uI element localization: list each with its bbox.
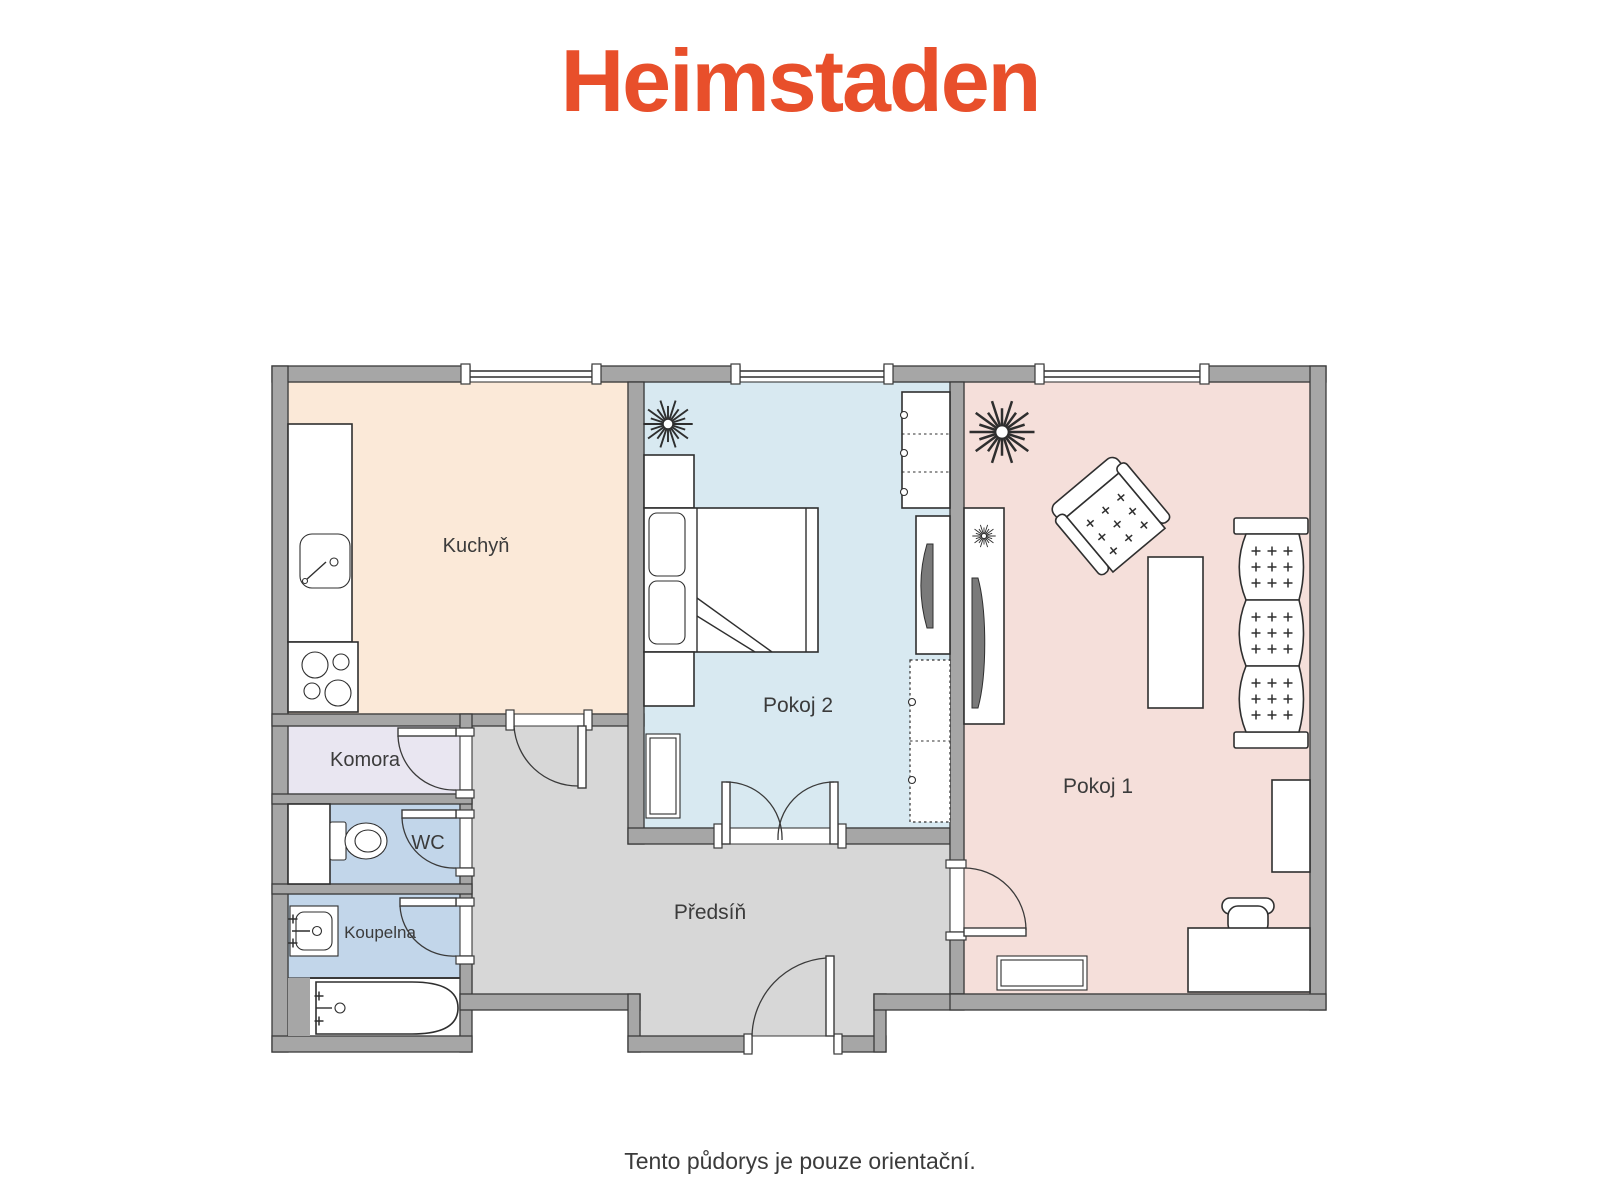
window-icon — [1035, 364, 1044, 384]
door-icon — [400, 898, 456, 906]
wall-segment — [950, 994, 1326, 1010]
coffee-table-icon — [1148, 557, 1203, 708]
door-icon — [402, 810, 456, 818]
toilet-icon — [330, 822, 387, 860]
wardrobe-icon — [909, 660, 951, 822]
door-icon — [826, 956, 834, 1036]
room-label-kuchyn: Kuchyň — [443, 535, 510, 557]
wall-segment — [272, 884, 472, 894]
disclaimer-caption: Tento půdorys je pouze orientační. — [0, 1148, 1600, 1175]
pillow — [649, 513, 685, 576]
bathtub-icon — [315, 982, 459, 1034]
window-icon — [1200, 364, 1209, 384]
wall-segment — [950, 382, 964, 868]
window-pokoj2 — [731, 364, 893, 384]
nightstand — [644, 455, 694, 508]
radiator-icon — [646, 734, 680, 818]
room-label-pokoj2: Pokoj 2 — [763, 694, 833, 717]
bed-icon — [644, 508, 818, 652]
wall-segment — [1200, 366, 1326, 382]
wall-segment — [272, 714, 514, 726]
door-icon — [722, 782, 730, 844]
wall-segment — [272, 366, 470, 382]
pillow — [649, 581, 685, 644]
room-label-koupelna: Koupelna — [344, 923, 416, 942]
window-icon — [592, 364, 601, 384]
wardrobe-icon — [901, 392, 951, 508]
wall-segment — [460, 994, 640, 1010]
wall-segment — [272, 794, 472, 804]
wall-segment — [1310, 366, 1326, 1010]
wall-segment — [838, 828, 950, 844]
sink-icon — [300, 534, 350, 588]
window-icon — [731, 364, 740, 384]
sofa-icon — [1234, 518, 1308, 748]
wall-segment — [628, 828, 722, 844]
cabinet-icon — [1272, 780, 1310, 872]
window-kitchen — [461, 364, 601, 384]
wall-segment — [272, 366, 288, 1052]
page: Heimstaden — [0, 0, 1600, 1200]
kitchen-counter — [288, 424, 352, 642]
washbasin-icon — [289, 906, 339, 956]
desk-icon — [1188, 928, 1310, 992]
tv-cabinet — [964, 508, 1004, 724]
wall-segment — [628, 382, 644, 844]
installation-shaft — [288, 804, 330, 884]
wall-segment — [592, 366, 740, 382]
room-label-predsin: Předsíň — [674, 901, 746, 924]
door-icon — [830, 782, 838, 844]
koupelna-furniture — [289, 906, 339, 956]
room-label-wc: WC — [411, 832, 444, 854]
wall-segment — [272, 1036, 472, 1052]
kitchen-furniture — [288, 424, 358, 712]
room-label-komora: Komora — [330, 749, 401, 771]
wall-segment — [288, 978, 310, 1036]
wall-segment — [628, 1036, 752, 1052]
room-label-pokoj1: Pokoj 1 — [1063, 775, 1133, 798]
floor-plan: Kuchyň Pokoj 2 Pokoj 1 Komora WC Koupeln… — [0, 0, 1600, 1200]
stove-icon — [288, 642, 358, 712]
door-icon — [398, 728, 456, 736]
nightstand — [644, 652, 694, 706]
wall-segment — [884, 366, 1044, 382]
tv-cabinet — [916, 516, 950, 654]
wall-segment — [950, 932, 964, 994]
radiator-icon — [997, 956, 1087, 990]
window-icon — [461, 364, 470, 384]
window-pokoj1 — [1035, 364, 1209, 384]
door-icon — [578, 726, 586, 788]
window-icon — [884, 364, 893, 384]
door-icon — [964, 928, 1026, 936]
